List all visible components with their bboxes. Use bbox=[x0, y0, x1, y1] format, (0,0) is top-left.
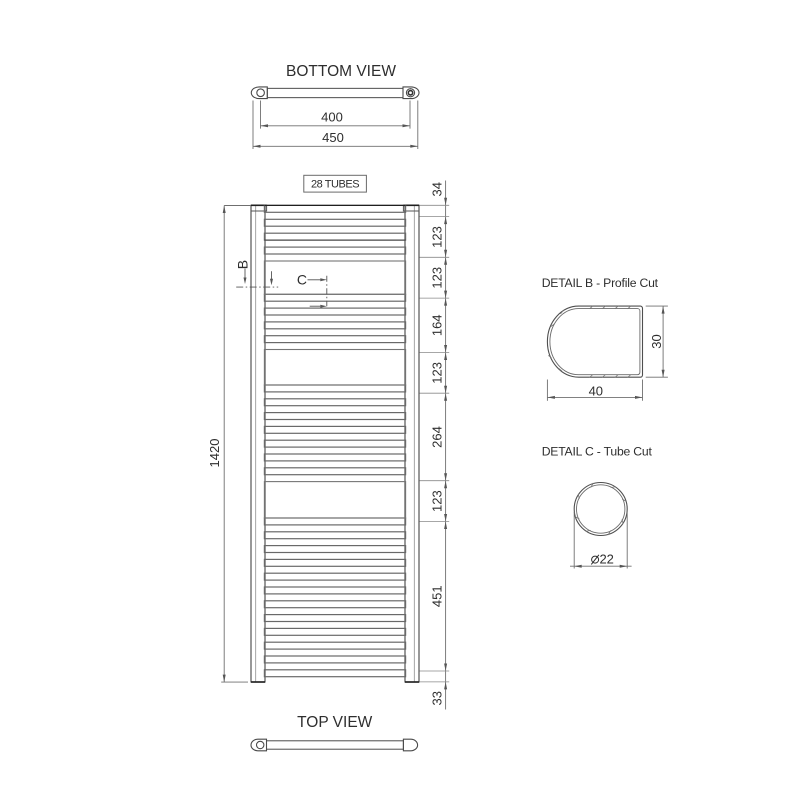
svg-text:123: 123 bbox=[430, 226, 445, 248]
svg-text:450: 450 bbox=[322, 130, 344, 145]
svg-text:33: 33 bbox=[430, 691, 445, 705]
svg-text:22: 22 bbox=[599, 551, 613, 566]
svg-text:DETAIL B - Profile Cut: DETAIL B - Profile Cut bbox=[542, 276, 659, 290]
svg-text:123: 123 bbox=[430, 490, 445, 512]
svg-text:TOP VIEW: TOP VIEW bbox=[297, 714, 373, 731]
svg-text:28 TUBES: 28 TUBES bbox=[311, 179, 359, 191]
svg-text:451: 451 bbox=[430, 585, 445, 607]
svg-text:164: 164 bbox=[430, 314, 445, 336]
svg-text:34: 34 bbox=[430, 182, 445, 196]
svg-text:40: 40 bbox=[589, 384, 603, 399]
svg-text:1420: 1420 bbox=[207, 439, 222, 468]
svg-text:C: C bbox=[297, 271, 307, 287]
svg-text:DETAIL C - Tube Cut: DETAIL C - Tube Cut bbox=[542, 444, 653, 458]
svg-text:264: 264 bbox=[430, 426, 445, 448]
svg-text:30: 30 bbox=[649, 334, 664, 348]
svg-text:123: 123 bbox=[430, 267, 445, 289]
svg-text:123: 123 bbox=[430, 362, 445, 384]
svg-text:BOTTOM VIEW: BOTTOM VIEW bbox=[286, 63, 396, 80]
svg-text:400: 400 bbox=[321, 110, 343, 125]
svg-text:B: B bbox=[234, 260, 250, 269]
